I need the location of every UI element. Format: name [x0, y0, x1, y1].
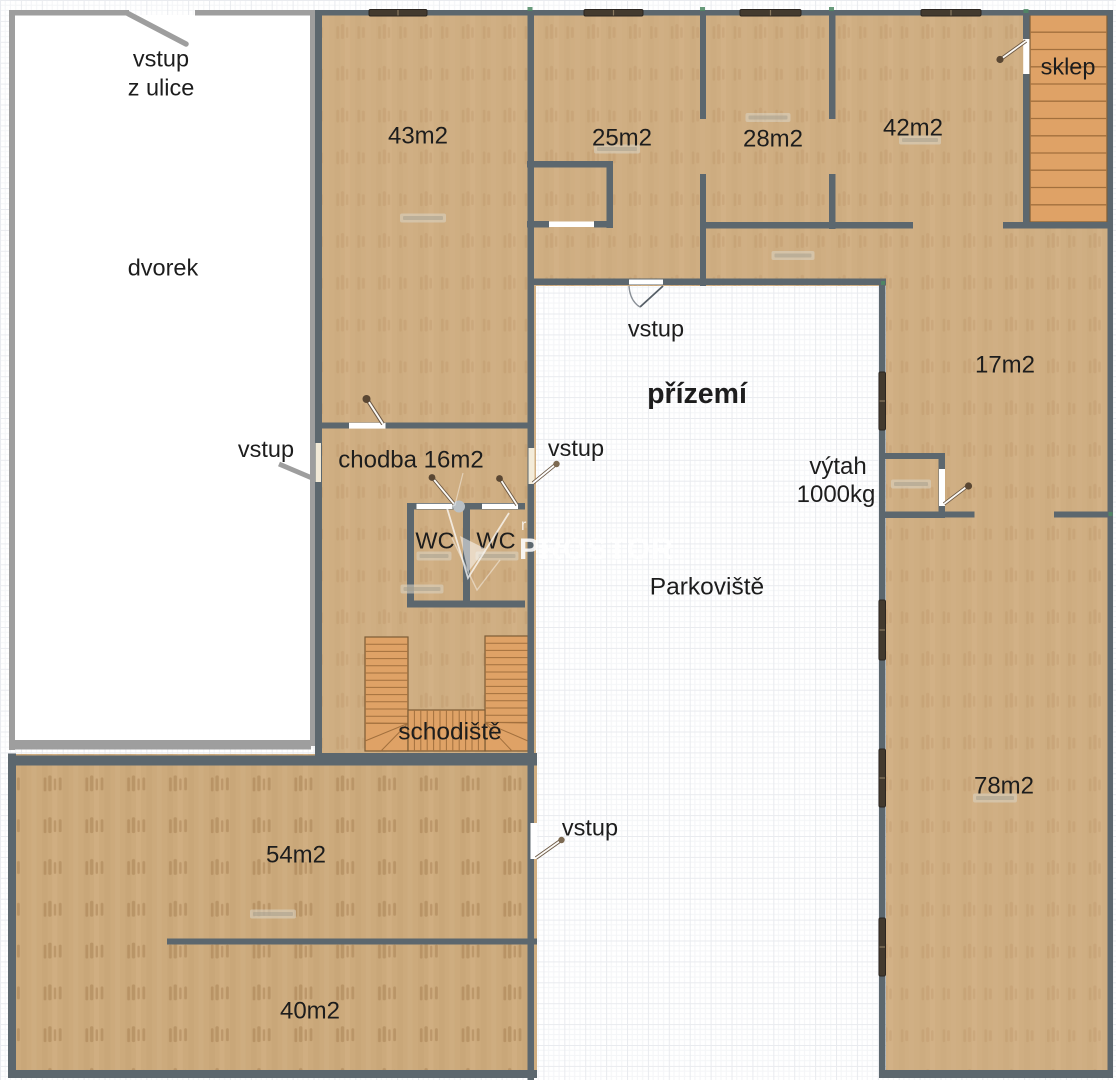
svg-text:r: r [521, 517, 527, 534]
svg-text:dvorek: dvorek [128, 255, 199, 281]
svg-text:17m2: 17m2 [975, 352, 1035, 379]
svg-text:25m2: 25m2 [592, 125, 652, 152]
svg-text:54m2: 54m2 [266, 842, 326, 869]
svg-text:vstup: vstup [238, 436, 294, 462]
svg-text:výtah: výtah [809, 453, 866, 480]
svg-text:PROSTOR: PROSTOR [519, 533, 674, 566]
svg-text:sklep: sklep [1041, 54, 1096, 80]
svg-text:78m2: 78m2 [974, 773, 1034, 800]
svg-text:schodiště: schodiště [398, 719, 502, 746]
svg-text:Parkoviště: Parkoviště [650, 574, 764, 601]
svg-text:vstup: vstup [133, 46, 189, 72]
svg-text:vstup: vstup [562, 815, 618, 841]
svg-text:z ulice: z ulice [128, 75, 195, 101]
svg-text:1000kg: 1000kg [797, 481, 876, 508]
svg-text:vstup: vstup [628, 316, 684, 342]
svg-text:28m2: 28m2 [743, 126, 803, 153]
svg-text:vstup: vstup [548, 435, 604, 461]
svg-text:40m2: 40m2 [280, 998, 340, 1025]
svg-text:chodba 16m2: chodba 16m2 [338, 447, 483, 474]
svg-text:přízemí: přízemí [647, 378, 748, 410]
svg-text:WC: WC [415, 528, 454, 554]
svg-text:42m2: 42m2 [883, 115, 943, 142]
svg-text:43m2: 43m2 [388, 123, 448, 150]
